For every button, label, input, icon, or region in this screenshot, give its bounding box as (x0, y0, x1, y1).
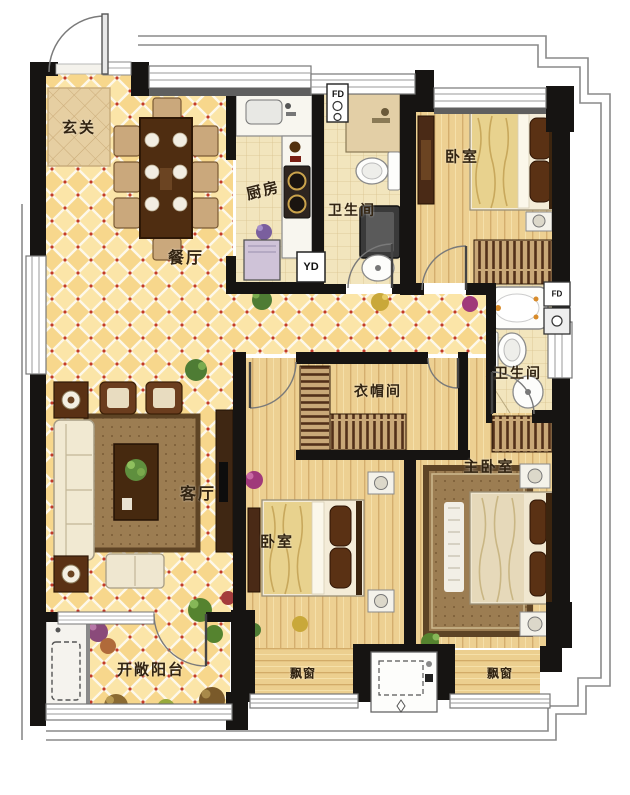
kitchen-sink (246, 100, 282, 124)
label-bay-left: 飘窗 (290, 665, 316, 682)
bench-master (444, 502, 464, 592)
balcony-divider (86, 620, 90, 704)
label-balcony: 开敞阳台 (117, 659, 185, 680)
wardrobe-bedroom-top (474, 240, 552, 284)
label-bath1: 卫生间 (328, 200, 376, 220)
window-top-bedroom (434, 88, 546, 114)
wardrobe-cloakroom-left (300, 366, 330, 450)
bed-master (470, 492, 552, 604)
floor-plan: 玄关 餐厅 厨房 卫生间 卧室 卫生间 衣帽间 客厅 卧室 主卧室 开敞阳台 飘… (0, 0, 630, 795)
window-living-balcony (58, 612, 154, 624)
coffee-table (114, 444, 158, 520)
label-bay-right: 飘窗 (487, 665, 513, 682)
wardrobe-cloakroom-bottom (330, 414, 406, 450)
label-bedroom-top: 卧室 (445, 146, 479, 167)
tv-cabinet-2 (248, 508, 260, 592)
label-yd: YD (303, 261, 318, 273)
label-foyer: 玄关 (62, 117, 96, 138)
label-fd-right: FD (552, 290, 563, 299)
master-set (421, 464, 552, 651)
window-top-dining (149, 66, 312, 96)
balcony-railing (46, 704, 232, 720)
label-living: 客厅 (180, 480, 216, 504)
entry-threshold (56, 64, 104, 74)
bed-top (470, 112, 554, 210)
window-left-living (26, 256, 46, 374)
label-dining: 餐厅 (168, 244, 204, 268)
label-bath2: 卫生间 (494, 363, 542, 383)
label-master: 主卧室 (463, 456, 514, 477)
label-bedroom-mid: 卧室 (260, 531, 294, 552)
bay-glass-right (450, 694, 550, 708)
ac-platform (371, 652, 437, 712)
bay-glass-left (250, 694, 358, 708)
tv (219, 462, 228, 502)
label-fd-top: FD (332, 89, 344, 99)
sink-1 (362, 255, 394, 281)
label-cloakroom: 衣帽间 (354, 381, 402, 401)
